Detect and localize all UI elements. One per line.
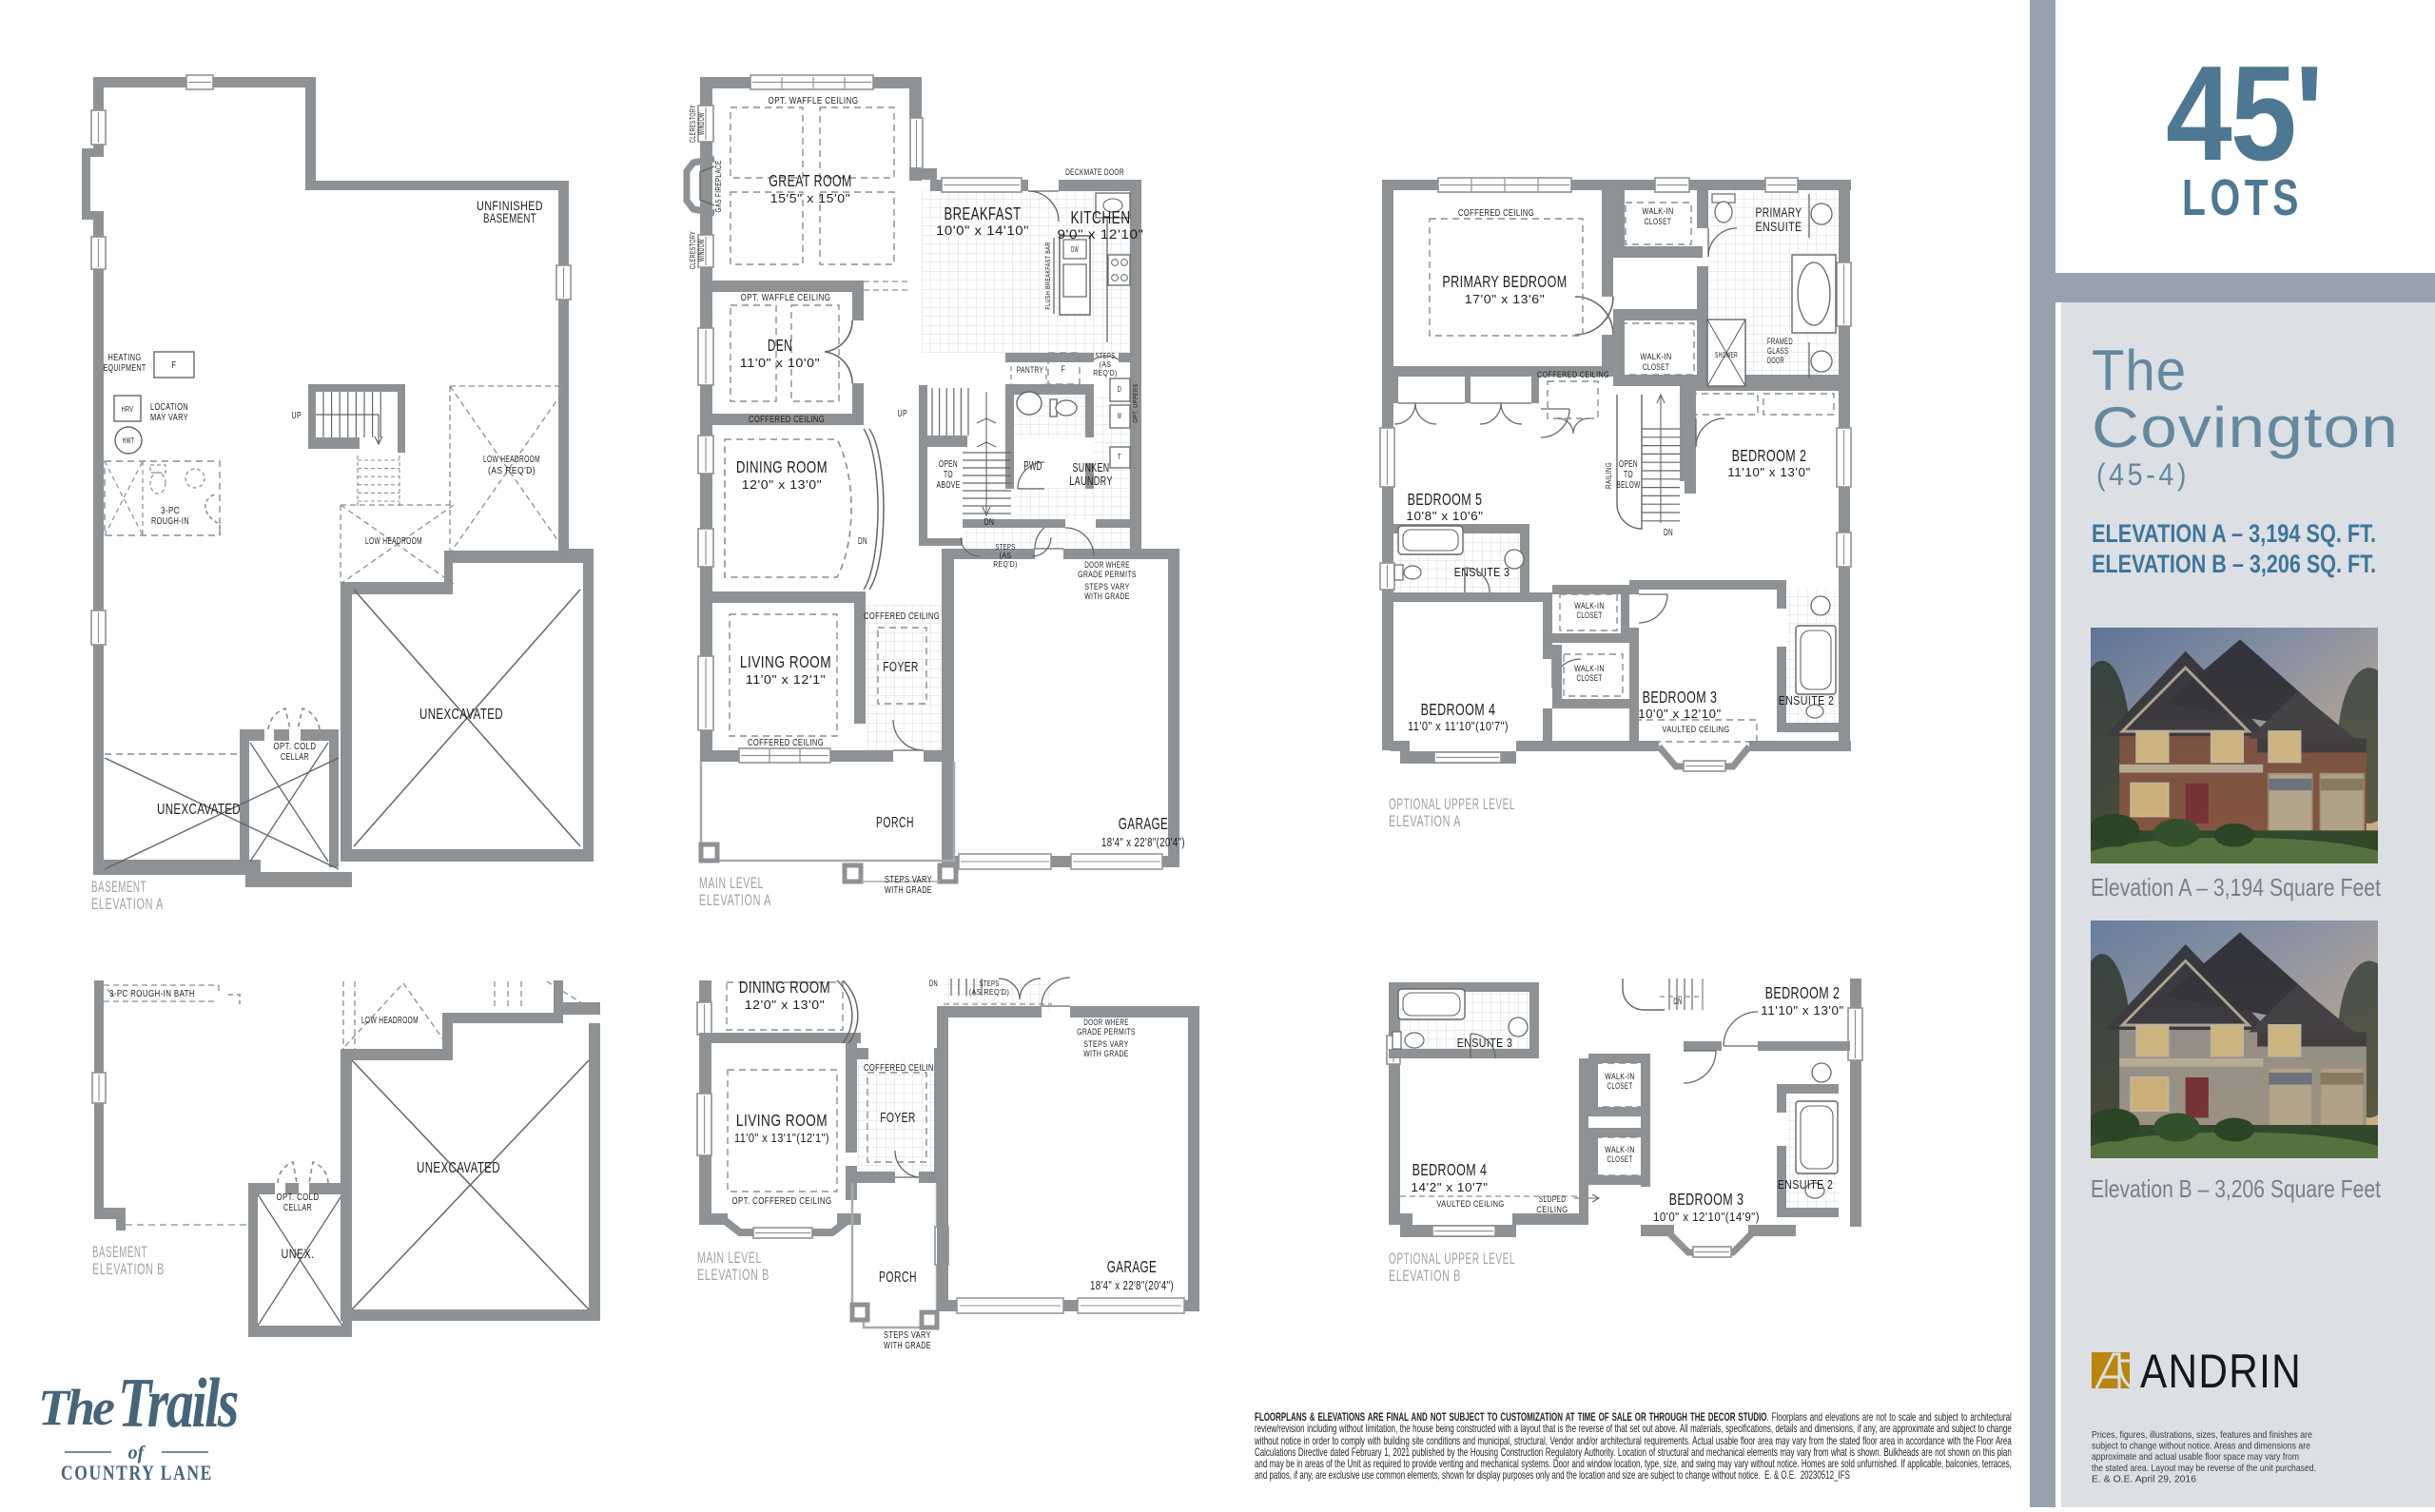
- svg-text:UNEXCAVATED: UNEXCAVATED: [419, 707, 503, 723]
- svg-text:STEPS VARY: STEPS VARY: [884, 1330, 931, 1341]
- svg-text:CLERESTORY: CLERESTORY: [689, 105, 697, 143]
- svg-text:ABOVE: ABOVE: [937, 480, 961, 491]
- svg-text:VAULTED CEILING: VAULTED CEILING: [1662, 725, 1729, 735]
- svg-text:CLOSET: CLOSET: [1645, 217, 1672, 227]
- svg-text:W: W: [1118, 411, 1121, 420]
- svg-text:COFFERED CEILING: COFFERED CEILING: [864, 611, 940, 622]
- svg-text:10'0" x 14'10": 10'0" x 14'10": [936, 223, 1029, 238]
- svg-text:DOOR: DOOR: [1767, 356, 1784, 365]
- svg-text:MAIN LEVEL: MAIN LEVEL: [699, 874, 764, 892]
- svg-text:ENSUITE: ENSUITE: [1756, 219, 1802, 234]
- svg-text:CLOSET: CLOSET: [1607, 1081, 1633, 1091]
- svg-text:11'0" x 12'1": 11'0" x 12'1": [746, 672, 827, 687]
- svg-text:WALK-IN: WALK-IN: [1605, 1072, 1635, 1081]
- svg-text:ELEVATION A: ELEVATION A: [699, 891, 771, 909]
- svg-text:TO: TO: [944, 470, 953, 480]
- svg-text:COFFERED CEILING: COFFERED CEILING: [749, 415, 825, 425]
- svg-text:HWT: HWT: [123, 436, 135, 445]
- svg-text:WINDOW: WINDOW: [697, 112, 706, 135]
- svg-text:FRAMED: FRAMED: [1767, 337, 1793, 346]
- svg-text:WALK-IN: WALK-IN: [1574, 601, 1605, 611]
- svg-text:DINING ROOM: DINING ROOM: [739, 978, 830, 997]
- svg-text:OPTIONAL UPPER LEVEL: OPTIONAL UPPER LEVEL: [1389, 1250, 1515, 1268]
- svg-text:COFFERED CEILING: COFFERED CEILING: [1458, 208, 1534, 219]
- svg-text:CELLAR: CELLAR: [281, 752, 309, 763]
- svg-text:BEDROOM 3: BEDROOM 3: [1643, 688, 1718, 707]
- svg-text:TO: TO: [1624, 470, 1633, 480]
- svg-text:F: F: [172, 360, 177, 371]
- svg-text:PANTRY: PANTRY: [1017, 365, 1044, 376]
- svg-text:OPEN: OPEN: [939, 459, 958, 470]
- svg-text:WALK-IN: WALK-IN: [1640, 352, 1671, 362]
- svg-text:(AS REQ'D): (AS REQ'D): [969, 987, 1010, 997]
- svg-text:ELEVATION B: ELEVATION B: [1389, 1267, 1461, 1285]
- svg-text:WALK-IN: WALK-IN: [1574, 664, 1605, 673]
- svg-text:ELEVATION B: ELEVATION B: [697, 1266, 769, 1284]
- svg-text:PRIMARY: PRIMARY: [1756, 204, 1802, 220]
- svg-text:GRADE PERMITS: GRADE PERMITS: [1078, 570, 1137, 580]
- svg-text:KITCHEN: KITCHEN: [1071, 208, 1131, 227]
- svg-text:OPT. COLD: OPT. COLD: [277, 1192, 320, 1203]
- svg-text:FOYER: FOYER: [880, 1110, 916, 1126]
- svg-text:12'0" x 13'0": 12'0" x 13'0": [745, 998, 826, 1012]
- svg-text:BEDROOM 4: BEDROOM 4: [1421, 700, 1496, 719]
- svg-text:WITH GRADE: WITH GRADE: [885, 885, 932, 896]
- svg-text:F: F: [1062, 364, 1066, 374]
- svg-text:9'0" x 12'10": 9'0" x 12'10": [1058, 226, 1144, 242]
- svg-text:OPT. COFFERED CEILING: OPT. COFFERED CEILING: [732, 1196, 832, 1207]
- svg-text:UNEXCAVATED: UNEXCAVATED: [157, 802, 241, 818]
- svg-text:LOW HEADROOM: LOW HEADROOM: [361, 1016, 419, 1026]
- svg-text:17'0" x 13'6": 17'0" x 13'6": [1465, 292, 1546, 306]
- svg-text:BELOW: BELOW: [1617, 480, 1641, 491]
- svg-text:11'0" x 10'0": 11'0" x 10'0": [740, 356, 821, 370]
- svg-text:BEDROOM 3: BEDROOM 3: [1669, 1190, 1744, 1209]
- svg-text:OPT. WAFFLE CEILING: OPT. WAFFLE CEILING: [769, 96, 859, 107]
- svg-text:GARAGE: GARAGE: [1107, 1257, 1158, 1276]
- svg-text:EQUIPMENT: EQUIPMENT: [104, 363, 146, 374]
- svg-text:WITH GRADE: WITH GRADE: [884, 1341, 931, 1351]
- svg-text:STEPS VARY: STEPS VARY: [885, 875, 932, 885]
- svg-text:BASEMENT: BASEMENT: [91, 878, 146, 896]
- svg-text:CLOSET: CLOSET: [1577, 611, 1603, 620]
- svg-text:HRV: HRV: [122, 404, 134, 414]
- svg-text:3-PC: 3-PC: [161, 506, 180, 516]
- svg-text:LIVING ROOM: LIVING ROOM: [736, 1111, 828, 1130]
- svg-text:GRADE PERMITS: GRADE PERMITS: [1077, 1027, 1136, 1037]
- svg-text:BEDROOM 4: BEDROOM 4: [1412, 1160, 1488, 1179]
- svg-text:D: D: [1118, 384, 1121, 394]
- svg-text:COFFERED CEILING: COFFERED CEILING: [748, 738, 824, 748]
- svg-text:PWD: PWD: [1023, 458, 1042, 473]
- svg-text:RAILING: RAILING: [1605, 462, 1613, 489]
- svg-text:MAIN LEVEL: MAIN LEVEL: [697, 1249, 762, 1267]
- svg-text:BEDROOM 5: BEDROOM 5: [1408, 490, 1483, 509]
- svg-text:VAULTED CEILING: VAULTED CEILING: [1436, 1199, 1504, 1210]
- svg-text:BASEMENT: BASEMENT: [483, 210, 536, 225]
- svg-text:11'0" x 13'1"(12'1"): 11'0" x 13'1"(12'1"): [734, 1131, 829, 1145]
- svg-text:(AS REQ'D): (AS REQ'D): [488, 466, 536, 476]
- svg-text:3-PC ROUGH-IN BATH: 3-PC ROUGH-IN BATH: [109, 989, 195, 999]
- svg-text:CELLAR: CELLAR: [283, 1203, 312, 1213]
- svg-text:GREAT ROOM: GREAT ROOM: [769, 171, 852, 190]
- svg-text:BEDROOM 2: BEDROOM 2: [1732, 446, 1807, 465]
- svg-text:SHOWER: SHOWER: [1715, 351, 1738, 359]
- svg-text:DINING ROOM: DINING ROOM: [736, 457, 828, 476]
- svg-text:ELEVATION A: ELEVATION A: [1389, 812, 1461, 830]
- svg-text:14'2" x 10'7": 14'2" x 10'7": [1411, 1181, 1488, 1194]
- svg-text:LOW HEADROOM: LOW HEADROOM: [365, 536, 422, 547]
- svg-text:ROUGH-IN: ROUGH-IN: [151, 516, 189, 527]
- svg-text:CLERESTORY: CLERESTORY: [689, 231, 697, 269]
- svg-text:DECKMATE DOOR: DECKMATE DOOR: [1065, 167, 1124, 178]
- svg-text:UNEX.: UNEX.: [282, 1246, 315, 1261]
- svg-text:T: T: [1118, 452, 1121, 461]
- svg-text:DEN: DEN: [768, 336, 792, 355]
- svg-text:ENSUITE 3: ENSUITE 3: [1454, 565, 1510, 579]
- svg-text:OPTIONAL UPPER LEVEL: OPTIONAL UPPER LEVEL: [1389, 795, 1515, 813]
- svg-text:COFFERED CEILING: COFFERED CEILING: [864, 1063, 940, 1074]
- svg-text:ENSUITE 2: ENSUITE 2: [1778, 1177, 1834, 1192]
- svg-text:WALK-IN: WALK-IN: [1605, 1145, 1635, 1154]
- svg-text:REQ'D): REQ'D): [1093, 368, 1118, 378]
- svg-text:10'0" x 12'10"(14'9"): 10'0" x 12'10"(14'9"): [1653, 1211, 1760, 1224]
- svg-text:18'4" x 22'8"(20'4"): 18'4" x 22'8"(20'4"): [1101, 835, 1185, 849]
- svg-text:PORCH: PORCH: [876, 815, 914, 831]
- svg-text:CLOSET: CLOSET: [1607, 1154, 1633, 1164]
- svg-text:LAUNDRY: LAUNDRY: [1069, 474, 1113, 488]
- svg-text:LOW HEADROOM: LOW HEADROOM: [483, 455, 540, 465]
- svg-text:DN: DN: [1673, 997, 1683, 1007]
- svg-text:ELEVATION B: ELEVATION B: [92, 1260, 165, 1278]
- svg-text:WITH GRADE: WITH GRADE: [1084, 591, 1130, 602]
- svg-text:UP: UP: [292, 410, 302, 421]
- svg-text:OPT. WAFFLE CEILING: OPT. WAFFLE CEILING: [741, 293, 831, 303]
- svg-text:OPT. COLD: OPT. COLD: [274, 742, 317, 752]
- svg-text:DN: DN: [984, 516, 995, 528]
- svg-text:10'0" x 12'10": 10'0" x 12'10": [1638, 708, 1722, 721]
- svg-text:DN: DN: [858, 536, 867, 547]
- svg-text:FLUSH BREAKFAST BAR: FLUSH BREAKFAST BAR: [1043, 242, 1052, 309]
- svg-text:BREAKFAST: BREAKFAST: [945, 204, 1022, 223]
- svg-text:12'0" x 13'0": 12'0" x 13'0": [742, 477, 823, 492]
- svg-text:BEDROOM 2: BEDROOM 2: [1765, 983, 1841, 1002]
- svg-text:PORCH: PORCH: [879, 1270, 917, 1286]
- svg-text:WINDOW: WINDOW: [697, 239, 706, 262]
- svg-text:LIVING ROOM: LIVING ROOM: [740, 652, 831, 671]
- svg-text:MAY VARY: MAY VARY: [150, 413, 188, 423]
- svg-text:ENSUITE 2: ENSUITE 2: [1779, 693, 1835, 708]
- svg-text:18'4" x 22'8"(20'4"): 18'4" x 22'8"(20'4"): [1090, 1278, 1174, 1292]
- svg-text:WALK-IN: WALK-IN: [1642, 206, 1673, 217]
- svg-text:CLOSET: CLOSET: [1577, 673, 1603, 683]
- svg-text:11'10" x 13'0": 11'10" x 13'0": [1761, 1004, 1844, 1018]
- svg-text:GLASS: GLASS: [1767, 346, 1789, 356]
- svg-text:15'5" x 15'0": 15'5" x 15'0": [770, 191, 851, 205]
- svg-text:FOYER: FOYER: [883, 659, 919, 675]
- svg-text:BASEMENT: BASEMENT: [92, 1243, 147, 1261]
- svg-text:WITH GRADE: WITH GRADE: [1083, 1049, 1129, 1059]
- svg-text:DN: DN: [1664, 528, 1673, 538]
- svg-text:ELEVATION A: ELEVATION A: [91, 895, 164, 913]
- svg-text:SLOPED: SLOPED: [1539, 1194, 1567, 1205]
- svg-text:PRIMARY BEDROOM: PRIMARY BEDROOM: [1442, 272, 1567, 291]
- svg-text:11'10" x 13'0": 11'10" x 13'0": [1727, 466, 1811, 479]
- svg-text:UNEXCAVATED: UNEXCAVATED: [417, 1160, 500, 1176]
- svg-text:SUNKEN: SUNKEN: [1073, 460, 1110, 475]
- svg-text:OPT. UPPERS: OPT. UPPERS: [1131, 383, 1140, 422]
- svg-text:GARAGE: GARAGE: [1119, 814, 1169, 833]
- svg-text:COFFERED CEILING: COFFERED CEILING: [1537, 370, 1609, 380]
- svg-text:OPEN: OPEN: [1619, 459, 1638, 470]
- svg-text:REQ'D): REQ'D): [993, 559, 1018, 569]
- svg-text:DW: DW: [1071, 245, 1079, 254]
- svg-text:DN: DN: [929, 979, 938, 988]
- svg-text:LOCATION: LOCATION: [150, 402, 188, 413]
- svg-text:10'8" x 10'6": 10'8" x 10'6": [1406, 510, 1483, 523]
- svg-text:11'0" x 11'10"(10'7"): 11'0" x 11'10"(10'7"): [1408, 720, 1509, 733]
- svg-text:HEATING: HEATING: [108, 353, 142, 363]
- svg-text:UP: UP: [898, 408, 908, 419]
- svg-text:CLOSET: CLOSET: [1643, 362, 1670, 373]
- svg-text:GAS FIREPLACE: GAS FIREPLACE: [713, 160, 723, 212]
